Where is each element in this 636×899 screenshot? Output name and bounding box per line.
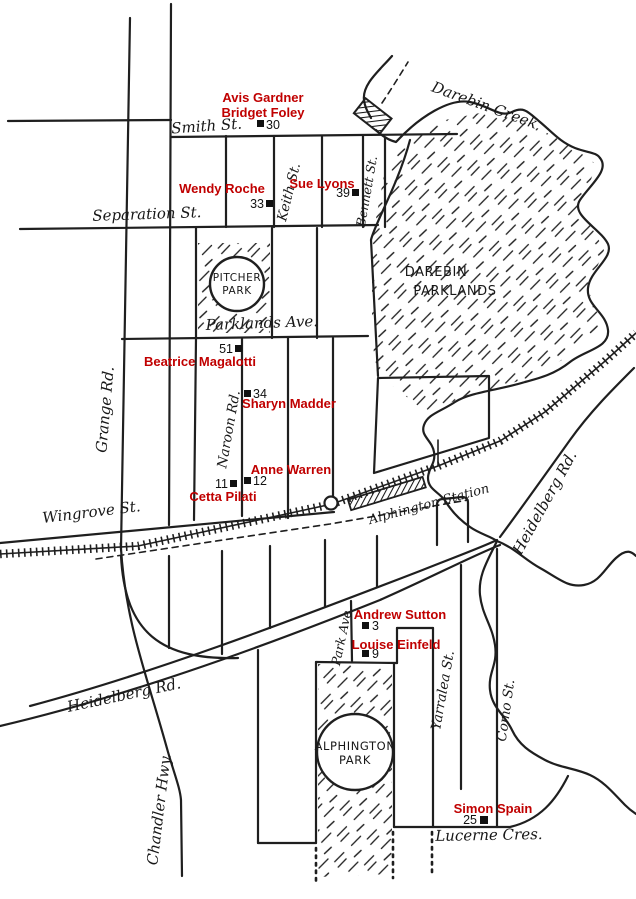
label-lucerne-cres: Lucerne Cres.	[434, 825, 543, 845]
house-number-9: 9	[372, 647, 379, 661]
label-alphington-park-2: PARK	[339, 753, 371, 767]
house-number-34: 34	[253, 387, 267, 401]
footpath-dashed	[382, 62, 408, 103]
house-marker-12: 12	[244, 474, 267, 488]
house-number-25: 25	[463, 813, 477, 827]
label-parklands-ave: Parklands Ave.	[204, 312, 318, 334]
label-bridget-foley: Bridget Foley	[221, 105, 305, 120]
alphington-map: Smith St. Separation St. Parklands Ave. …	[0, 0, 636, 899]
house-marker-33: 33	[250, 197, 273, 211]
label-avis-gardner: Avis Gardner	[222, 90, 303, 105]
label-heidelberg-rd-west: Heidelberg Rd.	[65, 674, 183, 716]
house-number-11: 11	[215, 477, 228, 491]
label-pitcher-park-1: PITCHER	[213, 272, 262, 284]
label-beatrice-magalotti: Beatrice Magalotti	[144, 354, 256, 369]
house-marker-39: 39	[336, 186, 359, 200]
station-circle	[325, 497, 338, 510]
alphington-map-page: Smith St. Separation St. Parklands Ave. …	[0, 0, 636, 899]
label-cetta-pilati: Cetta Pilati	[189, 489, 256, 504]
label-keith-st: Keith St.	[274, 161, 304, 223]
label-heidelberg-rd-east: Heidelberg Rd.	[508, 448, 580, 559]
label-grange-rd: Grange Rd.	[92, 366, 117, 454]
label-darebin-parklands-1: DAREBIN	[405, 265, 468, 280]
label-pitcher-park-2: PARK	[222, 285, 252, 297]
house-marker-30: 30	[257, 118, 280, 132]
label-wendy-roche: Wendy Roche	[179, 181, 265, 196]
label-separation-st: Separation St.	[92, 203, 202, 225]
label-wingrove-st: Wingrove St.	[41, 497, 141, 527]
darebin-parklands-hatch	[372, 112, 604, 415]
house-number-3: 3	[372, 619, 379, 633]
creek-bridge-icon	[354, 98, 392, 133]
label-alphington-park-1: ALPHINGTON	[314, 739, 395, 753]
label-andrew-sutton: Andrew Sutton	[354, 607, 446, 622]
house-number-51: 51	[219, 342, 233, 356]
house-number-39: 39	[336, 186, 350, 200]
label-naroon-rd: Naroon Rd.	[214, 389, 244, 470]
label-chandler-hwy: Chandler Hwy.	[143, 753, 175, 866]
house-number-33: 33	[250, 197, 264, 211]
label-louise-einfeld: Louise Einfeld	[352, 637, 441, 652]
house-number-30: 30	[266, 118, 280, 132]
house-number-12: 12	[253, 474, 267, 488]
pitcher-park-circle	[210, 257, 264, 311]
label-darebin-parklands-2: PARKLANDS	[413, 284, 496, 299]
